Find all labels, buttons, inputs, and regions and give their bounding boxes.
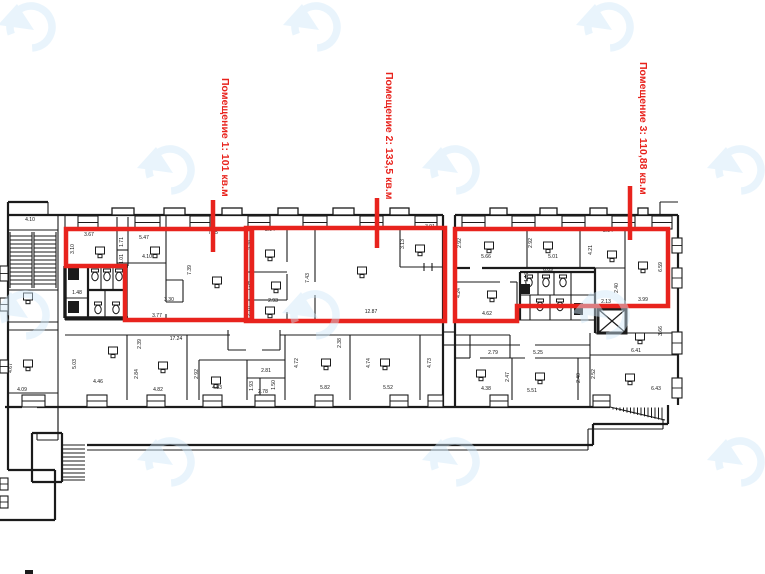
dimension-label: 4.21 [588, 245, 594, 255]
dimension-label: 6.09 [543, 267, 553, 273]
watermark-icon [707, 435, 765, 489]
dimension-label: 1.93 [249, 381, 255, 391]
desk-icon [477, 370, 486, 381]
watermark-icon [137, 435, 197, 489]
dimension-label: 2.40 [614, 283, 620, 293]
dimension-label: 5.25 [533, 350, 543, 356]
watermark-icon [0, 0, 58, 54]
dimension-label: 3.67 [84, 232, 94, 238]
dimension-label: 2.92 [528, 238, 534, 248]
desk-icon [266, 307, 275, 318]
desk-icon [544, 242, 553, 253]
toilet-icon [92, 269, 99, 281]
dimension-label: 5.03 [72, 359, 78, 369]
dimension-label: 3.13 [400, 239, 406, 249]
dimension-label: 4.46 [93, 379, 103, 385]
dimension-label: 2.78 [258, 389, 268, 395]
desk-icon [626, 374, 635, 385]
dimension-label: 3.99 [638, 297, 648, 303]
desk-icon [485, 242, 494, 253]
dimension-label: 4.72 [294, 358, 300, 368]
dimension-label: 17.24 [170, 336, 183, 342]
walls-layer [0, 202, 678, 520]
premise-annotations-layer: Помещение 1: 101 кв.мПомещение 2: 133,5 … [66, 62, 668, 321]
fixture-block [68, 301, 79, 313]
dimension-label: 2.92 [457, 238, 463, 248]
floor-plan-page: 4.104.674.093.673.101.711.015.474.107.45… [0, 0, 765, 574]
desk-icon [213, 277, 222, 288]
desk-icon [24, 360, 33, 371]
desk-icon [322, 359, 331, 370]
dimension-label: 5.47 [139, 235, 149, 241]
premise-label: Помещение 2: 133,5 кв.м [383, 72, 395, 200]
desk-icon [266, 250, 275, 261]
dimension-label: 4.62 [482, 311, 492, 317]
dimension-label: 4.67 [8, 363, 14, 373]
dimension-label: 1.17 [524, 272, 530, 282]
dimension-label: 5.52 [383, 385, 393, 391]
fixture-block [68, 268, 79, 280]
desk-icon [536, 373, 545, 384]
toilet-icon [104, 269, 111, 281]
dimension-label: 2.79 [488, 350, 498, 356]
fixture-block [25, 570, 33, 574]
dimension-label: 5.01 [548, 254, 558, 260]
watermark-icon [283, 0, 343, 54]
premise-outline-2: Помещение 2: 133,5 кв.м [246, 72, 445, 321]
desk-icon [272, 282, 281, 293]
dimension-label: 2.47 [505, 372, 511, 382]
dimension-label: 3.66 [658, 326, 664, 336]
watermark-icon [422, 143, 482, 197]
premise-label: Помещение 1: 101 кв.м [219, 78, 231, 197]
premise-label: Помещение 3: 110,88 кв.м [637, 62, 649, 195]
desk-icon [159, 362, 168, 373]
toilet-icon [543, 275, 550, 287]
dimension-label: 5.66 [481, 254, 491, 260]
dimension-label: 6.43 [651, 386, 661, 392]
dimension-label: 2.40 [576, 373, 582, 383]
dimension-label: 4.10 [142, 254, 152, 260]
dimension-label: 2.52 [591, 369, 597, 379]
dimension-label: 4.82 [153, 387, 163, 393]
dimension-label: 2.39 [137, 339, 143, 349]
dimension-label: 1.50 [271, 380, 277, 390]
dimension-label: 4.74 [366, 358, 372, 368]
dimension-label: 2.93 [268, 298, 278, 304]
toilet-icon [560, 275, 567, 287]
premise-outline-1: Помещение 1: 101 кв.м [66, 78, 252, 320]
dimension-label: 2.81 [261, 368, 271, 374]
dimension-label: 4.73 [427, 358, 433, 368]
dimension-label: 3.10 [70, 244, 76, 254]
dimension-label: 12.87 [365, 309, 378, 315]
dimension-label: 4.83 [212, 385, 222, 391]
dimension-label: 4.10 [25, 217, 35, 223]
dimension-label: 6.41 [631, 348, 641, 354]
dimension-label: 6.59 [658, 262, 664, 272]
dimension-label: 2.84 [134, 369, 140, 379]
dimension-label: 1.48 [72, 290, 82, 296]
desk-icon [488, 291, 497, 302]
dimension-label: 5.82 [320, 385, 330, 391]
desk-icon [358, 267, 367, 278]
dimension-label: 3.30 [164, 297, 174, 303]
dimension-label: 4.38 [481, 386, 491, 392]
desk-icon [636, 333, 645, 344]
watermarks-layer [0, 0, 765, 489]
dimension-label: 5.51 [527, 388, 537, 394]
fixture-block [521, 284, 530, 294]
watermark-icon [422, 435, 482, 489]
desk-icon [96, 247, 105, 258]
dimension-label: 1.71 [119, 237, 125, 247]
toilet-icon [113, 302, 120, 314]
desk-icon [109, 347, 118, 358]
dimension-label: 4.09 [17, 387, 27, 393]
toilet-icon [95, 302, 102, 314]
watermark-icon [707, 143, 765, 197]
dimension-label: 7.39 [187, 265, 193, 275]
watermark-icon [576, 0, 636, 54]
dimension-label: 1.01 [119, 254, 125, 264]
desk-icon [639, 262, 648, 273]
floor-plan-canvas: 4.104.674.093.673.101.711.015.474.107.45… [0, 0, 765, 574]
watermark-icon [282, 288, 342, 342]
dimension-label: 2.92 [194, 369, 200, 379]
toilet-icon [116, 269, 123, 281]
watermark-icon [137, 143, 197, 197]
desk-icon [608, 251, 617, 262]
desk-icon [381, 359, 390, 370]
dimension-label: 2.38 [337, 338, 343, 348]
dimension-label: 7.43 [305, 273, 311, 283]
desk-icon [416, 245, 425, 256]
